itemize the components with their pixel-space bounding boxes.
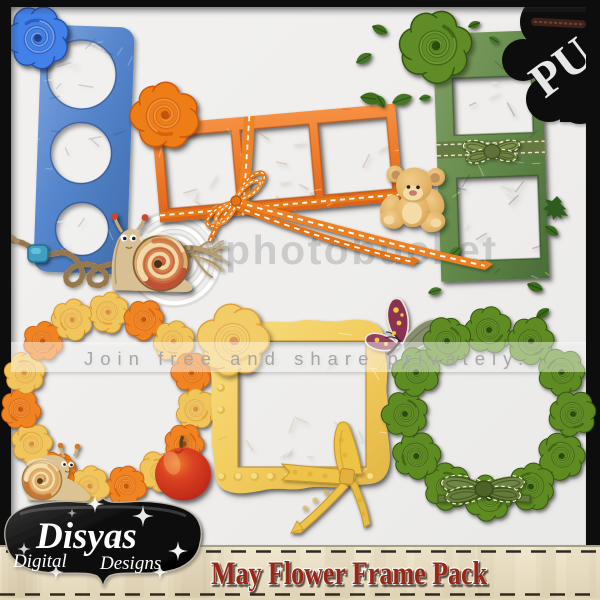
svg-text:Designs: Designs <box>99 553 161 574</box>
svg-text:May Flower Frame Pack: May Flower Frame Pack <box>211 556 488 592</box>
svg-text:Digital: Digital <box>12 551 67 572</box>
svg-text:Join free and share privately.: Join free and share privately. <box>84 348 530 369</box>
